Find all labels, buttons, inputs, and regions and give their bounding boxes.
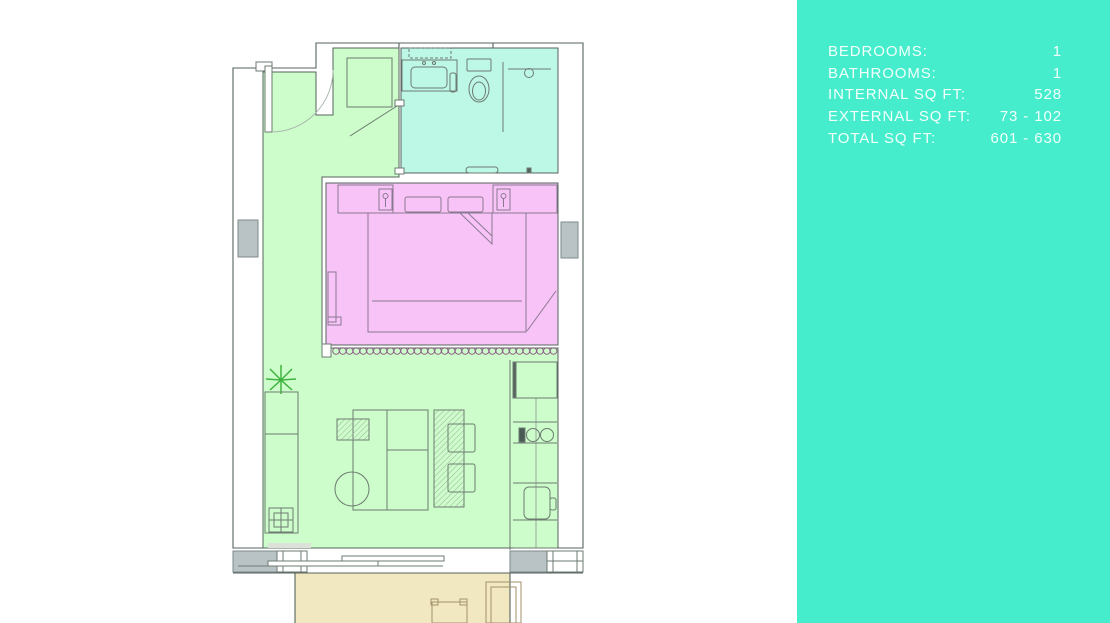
room-bedroom: [326, 183, 558, 345]
bedrooms-value: 1: [1053, 41, 1062, 63]
hob-control: [519, 428, 525, 442]
room-balcony: [295, 573, 510, 623]
external-sqft-label: EXTERNAL SQ FT:: [828, 106, 971, 128]
bedrooms-label: BEDROOMS:: [828, 41, 928, 63]
entry-door-leaf: [265, 66, 272, 132]
threshold-strip: [268, 543, 311, 548]
column-right: [561, 222, 578, 258]
info-row-external-sqft: EXTERNAL SQ FT: 73 - 102: [828, 106, 1062, 128]
total-sqft-label: TOTAL SQ FT:: [828, 128, 936, 150]
info-row-total-sqft: TOTAL SQ FT: 601 - 630: [828, 128, 1062, 150]
internal-sqft-value: 528: [1034, 84, 1062, 106]
external-sqft-value: 73 - 102: [1000, 106, 1062, 128]
door-stop: [527, 168, 531, 173]
column-bottom-right: [510, 551, 547, 572]
plant-icon: [266, 365, 296, 394]
column-left: [238, 220, 258, 257]
sliding-panel-1: [342, 556, 444, 561]
bathrooms-label: BATHROOMS:: [828, 63, 937, 85]
sliding-panel-2: [268, 561, 378, 566]
bath-door-jamb-bottom: [395, 168, 404, 174]
info-row-bedrooms: BEDROOMS: 1: [828, 41, 1062, 63]
total-sqft-value: 601 - 630: [991, 128, 1062, 150]
screenshot-root: BEDROOMS: 1 BATHROOMS: 1 INTERNAL SQ FT:…: [0, 0, 1110, 623]
internal-sqft-label: INTERNAL SQ FT:: [828, 84, 966, 106]
info-row-bathrooms: BATHROOMS: 1: [828, 63, 1062, 85]
partition-end-jamb: [322, 344, 331, 357]
coffee-table: [337, 419, 369, 440]
bath-door-jamb-top: [395, 100, 404, 106]
bathrooms-value: 1: [1053, 63, 1062, 85]
info-row-internal-sqft: INTERNAL SQ FT: 528: [828, 84, 1062, 106]
property-info-panel: BEDROOMS: 1 BATHROOMS: 1 INTERNAL SQ FT:…: [797, 0, 1110, 623]
